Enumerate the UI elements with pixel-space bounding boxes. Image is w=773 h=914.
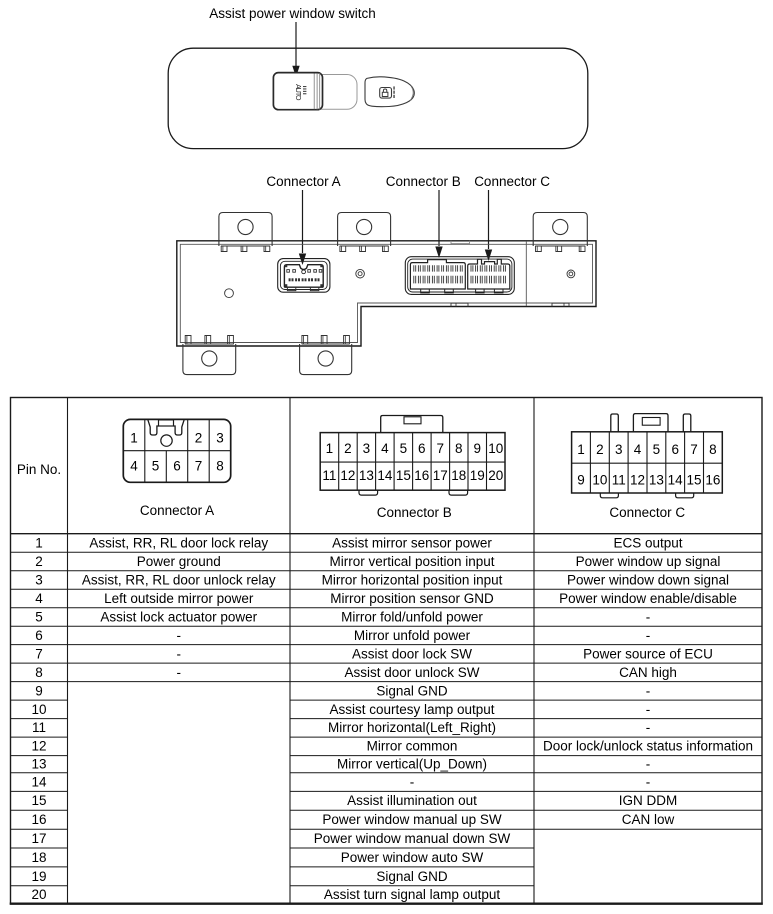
svg-text:Connector B: Connector B [386, 174, 461, 189]
svg-text:Mirror fold/unfold power: Mirror fold/unfold power [341, 609, 483, 624]
svg-text:2: 2 [195, 431, 203, 446]
svg-text:2: 2 [35, 554, 43, 569]
svg-text:Power ground: Power ground [137, 554, 221, 569]
svg-text:16: 16 [705, 472, 720, 487]
svg-text:-: - [410, 775, 415, 790]
svg-text:Mirror horizontal(Left_Right): Mirror horizontal(Left_Right) [328, 720, 496, 735]
svg-text:Signal GND: Signal GND [376, 869, 448, 884]
svg-text:16: 16 [414, 468, 429, 483]
svg-text:20: 20 [31, 887, 46, 902]
svg-text:17: 17 [433, 468, 448, 483]
svg-text:8: 8 [35, 665, 43, 680]
svg-text:Power window down signal: Power window down signal [567, 572, 729, 587]
svg-text:9: 9 [35, 683, 43, 698]
svg-text:Connector B: Connector B [377, 505, 452, 520]
svg-text:Pin No.: Pin No. [17, 462, 61, 477]
svg-text:Mirror position sensor GND: Mirror position sensor GND [330, 591, 494, 606]
svg-text:Assist courtesy lamp output: Assist courtesy lamp output [329, 702, 494, 717]
svg-text:7: 7 [690, 442, 698, 457]
svg-text:15: 15 [31, 793, 46, 808]
svg-text:14: 14 [31, 775, 47, 790]
svg-text:Mirror common: Mirror common [367, 739, 458, 754]
svg-text:-: - [177, 628, 182, 643]
svg-text:11: 11 [32, 720, 46, 735]
svg-text:4: 4 [634, 442, 642, 457]
svg-text:7: 7 [437, 441, 445, 456]
svg-text:Power window manual down SW: Power window manual down SW [314, 831, 511, 846]
svg-text:7: 7 [195, 459, 203, 474]
svg-text:Signal GND: Signal GND [376, 683, 448, 698]
svg-text:-: - [646, 775, 651, 790]
svg-text:1: 1 [35, 535, 43, 550]
svg-text:9: 9 [577, 472, 585, 487]
svg-text:14: 14 [377, 468, 393, 483]
svg-text:4: 4 [381, 441, 389, 456]
svg-text:3: 3 [216, 431, 224, 446]
svg-text:-: - [646, 702, 651, 717]
svg-text:-: - [646, 757, 651, 772]
svg-text:CAN high: CAN high [619, 665, 677, 680]
svg-text:Power window manual up SW: Power window manual up SW [322, 812, 502, 827]
svg-text:ECS output: ECS output [613, 535, 682, 550]
svg-text:10: 10 [31, 702, 46, 717]
svg-text:1: 1 [130, 431, 138, 446]
svg-text:Assist door lock SW: Assist door lock SW [352, 646, 472, 661]
svg-text:7: 7 [35, 646, 43, 661]
svg-text:-: - [646, 720, 651, 735]
svg-text:19: 19 [31, 869, 46, 884]
svg-text:6: 6 [35, 628, 43, 643]
svg-text:10: 10 [488, 441, 503, 456]
svg-text:Assist, RR, RL door lock relay: Assist, RR, RL door lock relay [89, 535, 268, 550]
svg-text:6: 6 [418, 441, 426, 456]
svg-text:19: 19 [470, 468, 485, 483]
svg-text:4: 4 [130, 459, 138, 474]
svg-text:18: 18 [451, 468, 466, 483]
svg-text:Power window auto SW: Power window auto SW [341, 850, 484, 865]
svg-text:Mirror vertical position input: Mirror vertical position input [329, 554, 494, 569]
svg-text:IGN DDM: IGN DDM [619, 793, 678, 808]
svg-text:-: - [646, 628, 651, 643]
svg-text:Power source of ECU: Power source of ECU [583, 646, 713, 661]
svg-text:11: 11 [322, 468, 336, 483]
svg-text:8: 8 [709, 442, 717, 457]
svg-text:Power window enable/disable: Power window enable/disable [559, 591, 737, 606]
svg-text:16: 16 [31, 812, 46, 827]
svg-text:1: 1 [326, 441, 334, 456]
svg-text:Assist power window switch: Assist power window switch [209, 6, 376, 21]
svg-text:Connector C: Connector C [474, 174, 550, 189]
svg-text:10: 10 [592, 472, 607, 487]
svg-text:8: 8 [216, 459, 224, 474]
svg-text:Door lock/unlock status inform: Door lock/unlock status information [543, 739, 753, 754]
svg-text:4: 4 [35, 591, 43, 606]
svg-text:15: 15 [396, 468, 411, 483]
svg-text:5: 5 [653, 442, 661, 457]
svg-text:Assist illumination out: Assist illumination out [347, 793, 477, 808]
svg-text:Assist turn signal lamp output: Assist turn signal lamp output [324, 887, 501, 902]
svg-text:Assist lock actuator power: Assist lock actuator power [100, 609, 257, 624]
svg-text:15: 15 [686, 472, 701, 487]
svg-text:3: 3 [35, 572, 43, 587]
svg-text:Left outside mirror power: Left outside mirror power [104, 591, 254, 606]
svg-text:11: 11 [612, 472, 626, 487]
svg-text:20: 20 [488, 468, 503, 483]
svg-text:Power window up signal: Power window up signal [576, 554, 721, 569]
svg-text:-: - [646, 609, 651, 624]
svg-text:Assist mirror sensor power: Assist mirror sensor power [332, 535, 492, 550]
svg-text:Mirror horizontal position inp: Mirror horizontal position input [322, 572, 503, 587]
svg-text:CAN low: CAN low [622, 812, 675, 827]
svg-text:9: 9 [474, 441, 482, 456]
svg-text:12: 12 [31, 739, 46, 754]
svg-text:5: 5 [400, 441, 408, 456]
svg-text:18: 18 [31, 850, 46, 865]
svg-text:-: - [177, 665, 182, 680]
svg-text:17: 17 [31, 831, 46, 846]
svg-text:Assist door unlock SW: Assist door unlock SW [344, 665, 479, 680]
svg-text:2: 2 [344, 441, 352, 456]
svg-text:13: 13 [649, 472, 664, 487]
svg-text:6: 6 [173, 459, 181, 474]
svg-text:Connector A: Connector A [140, 503, 214, 518]
svg-text:1: 1 [577, 442, 585, 457]
svg-text:Assist, RR, RL door unlock rel: Assist, RR, RL door unlock relay [82, 572, 276, 587]
svg-text:-: - [646, 683, 651, 698]
svg-text:6: 6 [671, 442, 679, 457]
svg-text:3: 3 [615, 442, 623, 457]
svg-text:13: 13 [31, 757, 46, 772]
svg-text:Mirror unfold power: Mirror unfold power [354, 628, 471, 643]
svg-text:3: 3 [363, 441, 371, 456]
svg-text:Connector A: Connector A [266, 174, 340, 189]
svg-text:5: 5 [152, 459, 160, 474]
svg-text:-: - [177, 646, 182, 661]
svg-text:AUTO: AUTO [294, 84, 301, 101]
svg-text:13: 13 [359, 468, 374, 483]
svg-text:8: 8 [455, 441, 463, 456]
svg-text:2: 2 [596, 442, 604, 457]
svg-text:14: 14 [668, 472, 684, 487]
svg-text:12: 12 [340, 468, 355, 483]
svg-text:5: 5 [35, 609, 43, 624]
svg-text:Mirror vertical(Up_Down): Mirror vertical(Up_Down) [337, 757, 487, 772]
svg-text:Connector C: Connector C [609, 505, 685, 520]
svg-text:12: 12 [630, 472, 645, 487]
